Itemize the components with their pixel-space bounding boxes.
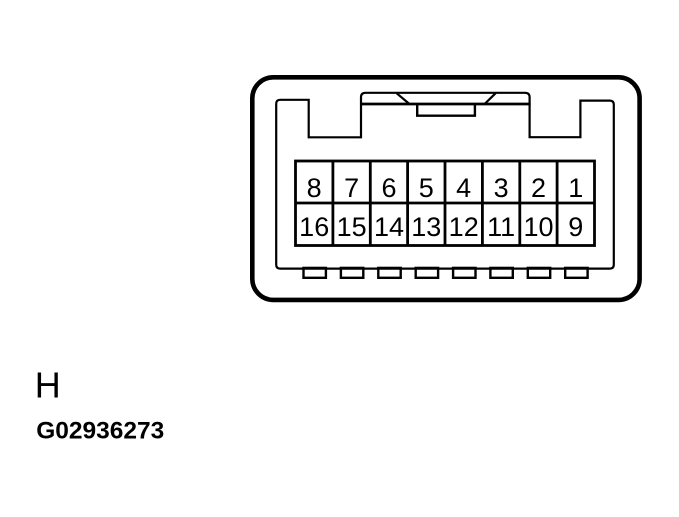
svg-text:2: 2 [531, 173, 546, 203]
svg-text:H: H [35, 365, 61, 406]
svg-text:16: 16 [299, 212, 329, 242]
svg-text:14: 14 [374, 212, 404, 242]
svg-text:1: 1 [568, 173, 583, 203]
svg-text:G02936273: G02936273 [36, 417, 164, 444]
svg-text:15: 15 [337, 212, 367, 242]
svg-text:9: 9 [568, 212, 583, 242]
svg-text:12: 12 [449, 212, 479, 242]
svg-text:13: 13 [411, 212, 441, 242]
svg-text:8: 8 [307, 173, 322, 203]
svg-text:10: 10 [523, 212, 553, 242]
svg-text:3: 3 [494, 173, 509, 203]
svg-text:6: 6 [381, 173, 396, 203]
svg-text:5: 5 [419, 173, 434, 203]
svg-text:4: 4 [456, 173, 471, 203]
svg-text:11: 11 [487, 212, 515, 242]
svg-text:7: 7 [344, 173, 359, 203]
